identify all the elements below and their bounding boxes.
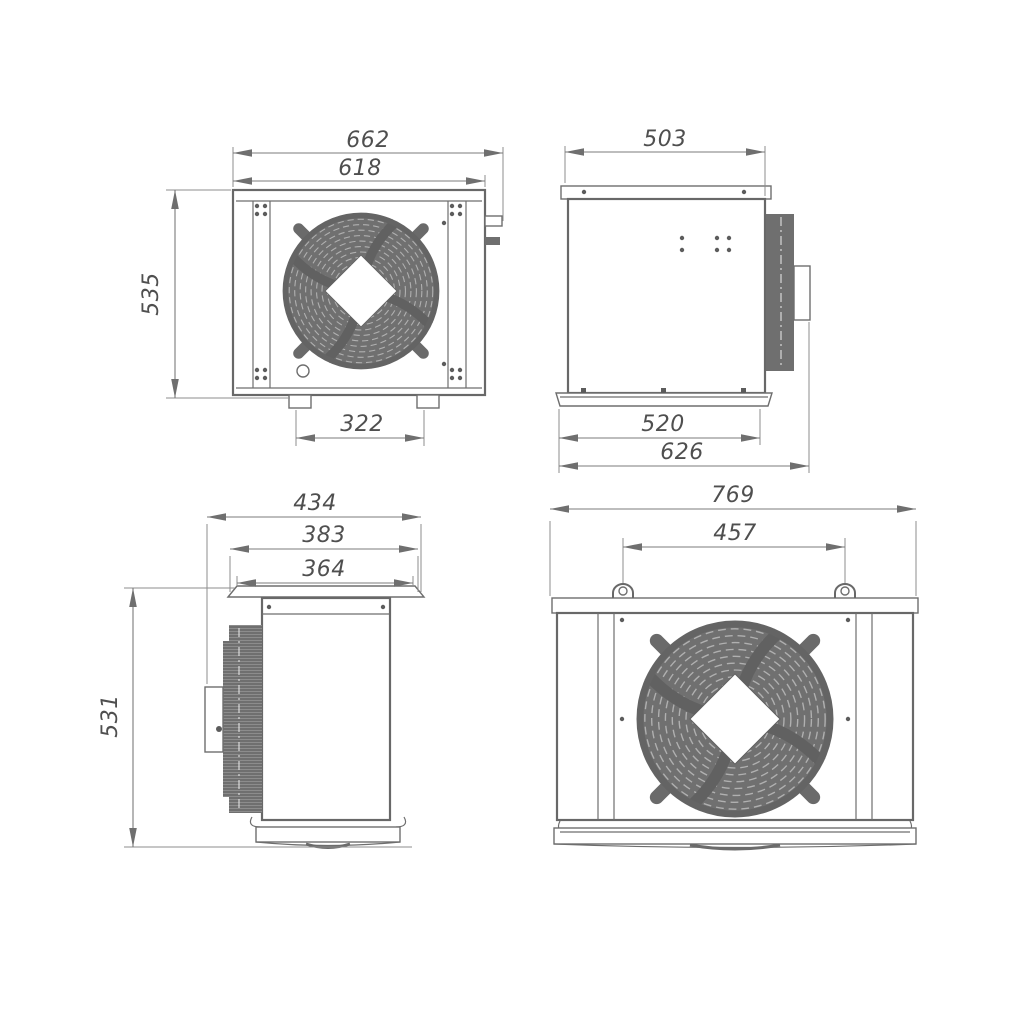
technical-drawing-canvas: 662 618 535 322 xyxy=(0,0,1024,1024)
side-coil-block xyxy=(766,214,810,371)
fan-grille-front xyxy=(283,213,439,369)
rear-base-tray xyxy=(554,821,916,849)
technical-drawing-page: 662 618 535 322 xyxy=(0,0,1024,1024)
view-front: 662 618 535 322 xyxy=(139,128,503,446)
view-profile: 434 383 364 531 xyxy=(98,491,424,848)
front-feet xyxy=(289,395,439,408)
dim-label-383: 383 xyxy=(302,523,346,548)
dim-label-503: 503 xyxy=(643,127,687,152)
mounting-lug-right xyxy=(835,584,855,598)
refrigerant-pipe-stubs xyxy=(485,216,502,245)
fan-grille-rear xyxy=(637,621,833,817)
dim-label-434: 434 xyxy=(293,491,337,516)
rear-top-rail xyxy=(552,598,918,613)
dim-label-531: 531 xyxy=(98,694,123,738)
dim-label-322: 322 xyxy=(340,412,384,437)
body-screw xyxy=(381,605,385,609)
dim-front-feet-spacing: 322 xyxy=(296,410,424,446)
dim-label-364: 364 xyxy=(302,557,346,582)
profile-junction-box xyxy=(205,687,223,752)
body-screw xyxy=(267,605,271,609)
rail-screw xyxy=(582,190,586,194)
view-side: 503 520 626 xyxy=(556,127,810,473)
side-top-rail xyxy=(561,186,771,199)
side-body xyxy=(568,199,765,393)
mounting-lug-left xyxy=(613,584,633,598)
dim-label-457: 457 xyxy=(713,521,757,546)
dim-label-769: 769 xyxy=(711,483,755,508)
dim-label-520: 520 xyxy=(641,412,685,437)
profile-body xyxy=(262,598,390,820)
rail-screw xyxy=(742,190,746,194)
view-rear: 769 457 xyxy=(550,483,918,849)
profile-coil-block xyxy=(223,625,262,813)
side-service-box xyxy=(794,266,810,320)
profile-base-tray xyxy=(250,817,405,848)
dim-label-626: 626 xyxy=(660,440,704,465)
dim-label-618: 618 xyxy=(338,156,382,181)
dim-rear-lug-spacing: 457 xyxy=(623,521,845,583)
dim-label-535: 535 xyxy=(139,272,164,316)
drain-hole xyxy=(297,365,309,377)
profile-top-flange xyxy=(228,586,424,597)
dim-front-body-width: 618 xyxy=(233,156,485,187)
dim-profile-body-width: 364 xyxy=(237,557,413,586)
dim-label-662: 662 xyxy=(346,128,390,153)
